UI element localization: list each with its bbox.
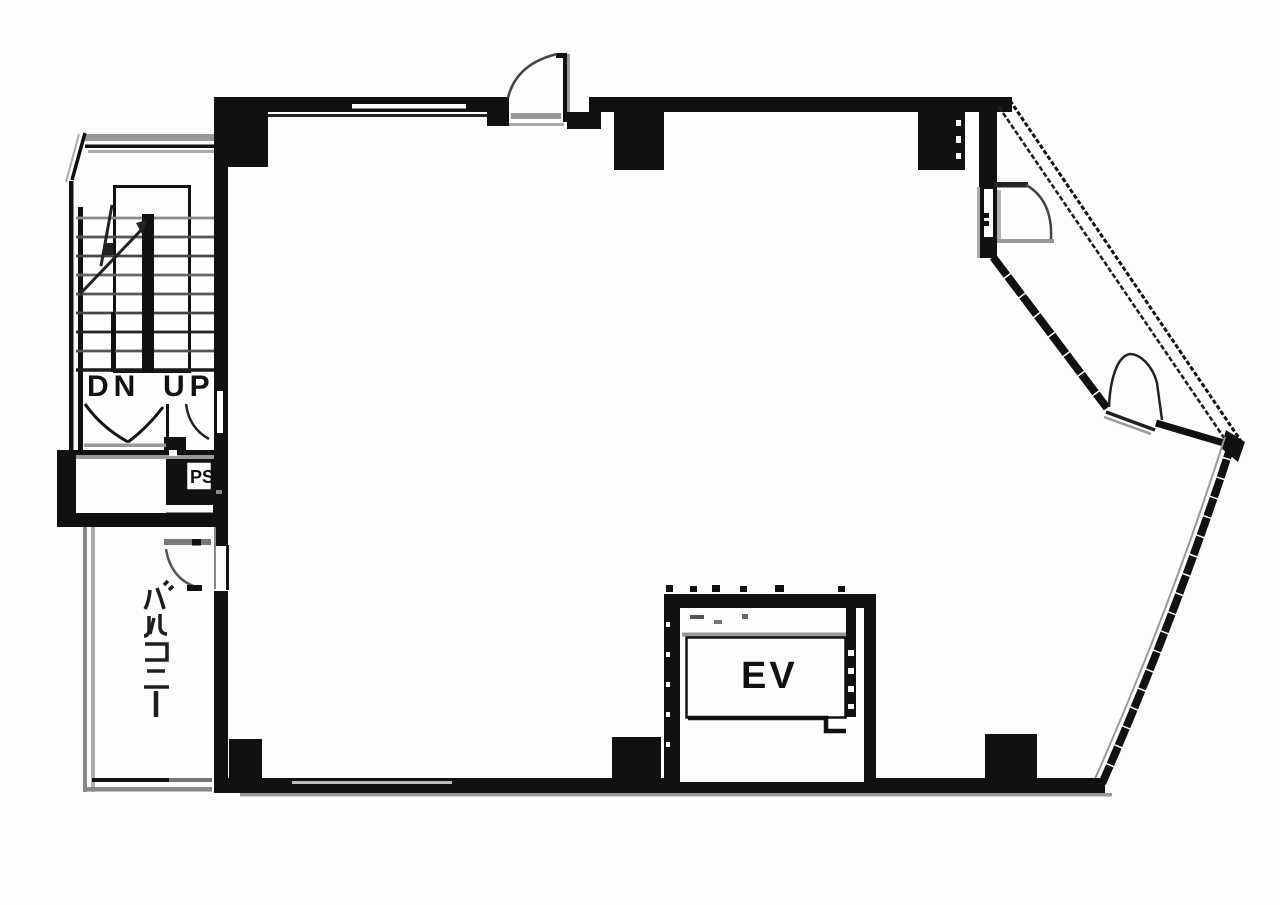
svg-text:PS: PS bbox=[190, 467, 214, 487]
svg-text:EV: EV bbox=[741, 655, 798, 697]
svg-text:DN: DN bbox=[87, 370, 140, 403]
svg-text:UP: UP bbox=[163, 370, 215, 403]
